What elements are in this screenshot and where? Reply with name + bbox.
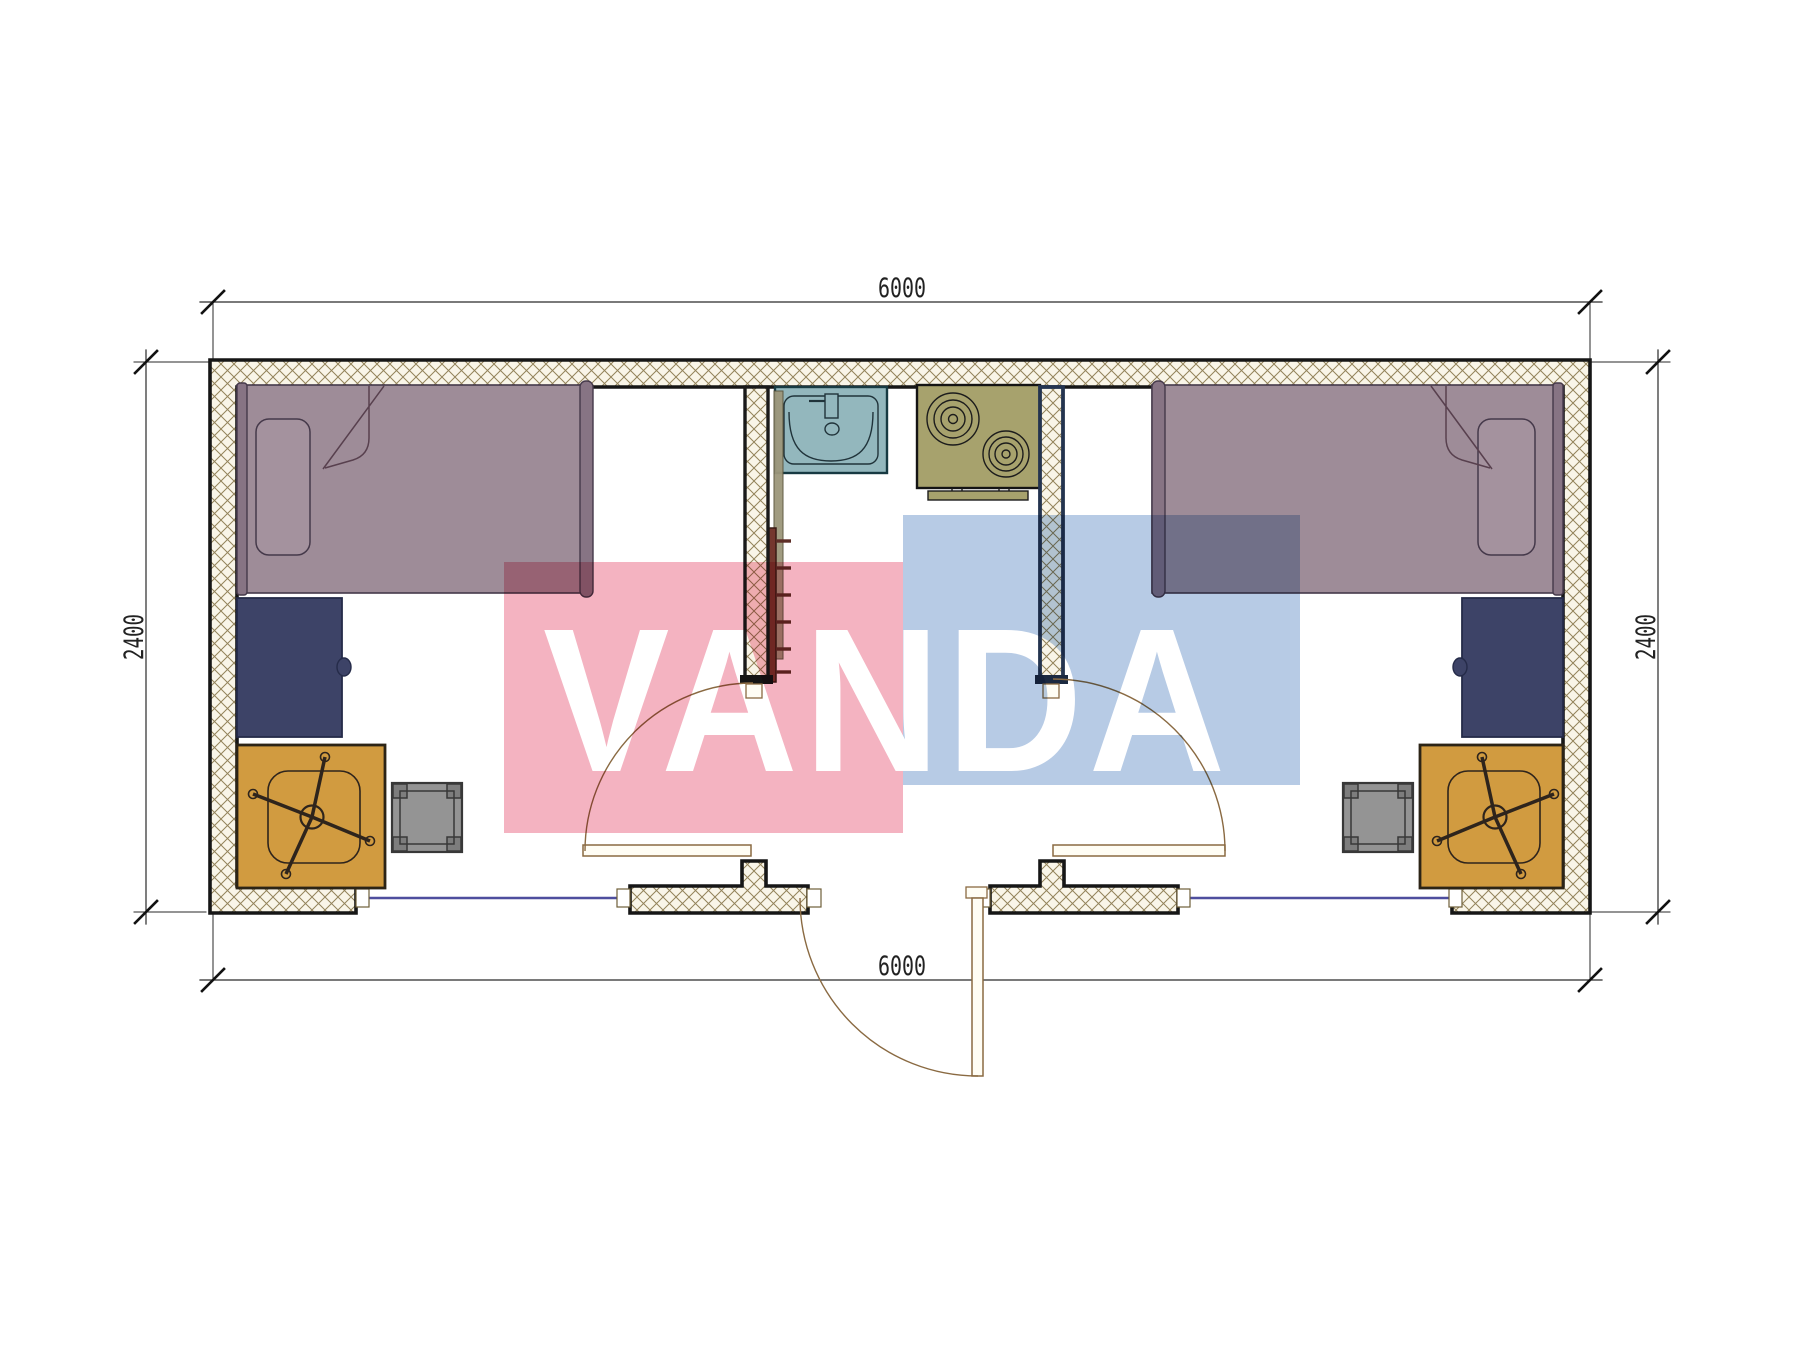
floor-plan-page: 6000 6000 2400 2400	[0, 0, 1800, 1350]
dimension-top-label: 6000	[878, 273, 926, 304]
windows	[356, 889, 1462, 907]
door-leaf	[1053, 845, 1225, 856]
stool-left	[392, 783, 462, 852]
chair-mat-right	[1420, 745, 1563, 888]
faucet-icon	[825, 394, 838, 418]
pillow-right	[1478, 419, 1535, 555]
desk-right-knob	[1453, 658, 1467, 676]
bottom-wall-segment-left	[630, 861, 808, 913]
desk-left-knob	[337, 658, 351, 676]
door-swing-arc	[800, 898, 978, 1076]
sink	[775, 387, 887, 473]
door-leaf	[972, 898, 983, 1076]
watermark-text: VANDA	[543, 586, 1231, 815]
watermark: VANDA	[504, 515, 1300, 833]
dimension-bottom: 6000	[200, 915, 1602, 991]
dimension-right-label: 2400	[1631, 614, 1662, 660]
floor-plan-drawing: 6000 6000 2400 2400	[0, 0, 1800, 1350]
dimension-left: 2400	[119, 350, 208, 924]
bed-right-headboard	[1553, 383, 1563, 595]
stove	[917, 385, 1040, 500]
dimension-top: 6000	[200, 273, 1602, 358]
window-frame-cap	[356, 889, 369, 907]
bed-left-headboard	[237, 383, 247, 595]
desk-left	[237, 598, 342, 737]
bottom-wall-segment-right	[990, 861, 1178, 913]
window-frame-cap	[1177, 889, 1190, 907]
dimension-left-label: 2400	[119, 614, 150, 660]
desk-right	[1462, 598, 1563, 737]
door-leaf	[583, 845, 751, 856]
window-frame-cap	[617, 889, 630, 907]
pillow-left	[256, 419, 310, 555]
door-frame-cap	[807, 889, 821, 907]
stool-right	[1343, 783, 1413, 852]
dimension-right: 2400	[1592, 350, 1670, 924]
window-frame-cap	[1449, 889, 1462, 907]
dimension-bottom-label: 6000	[878, 951, 926, 982]
stove-control-bar	[928, 491, 1028, 500]
